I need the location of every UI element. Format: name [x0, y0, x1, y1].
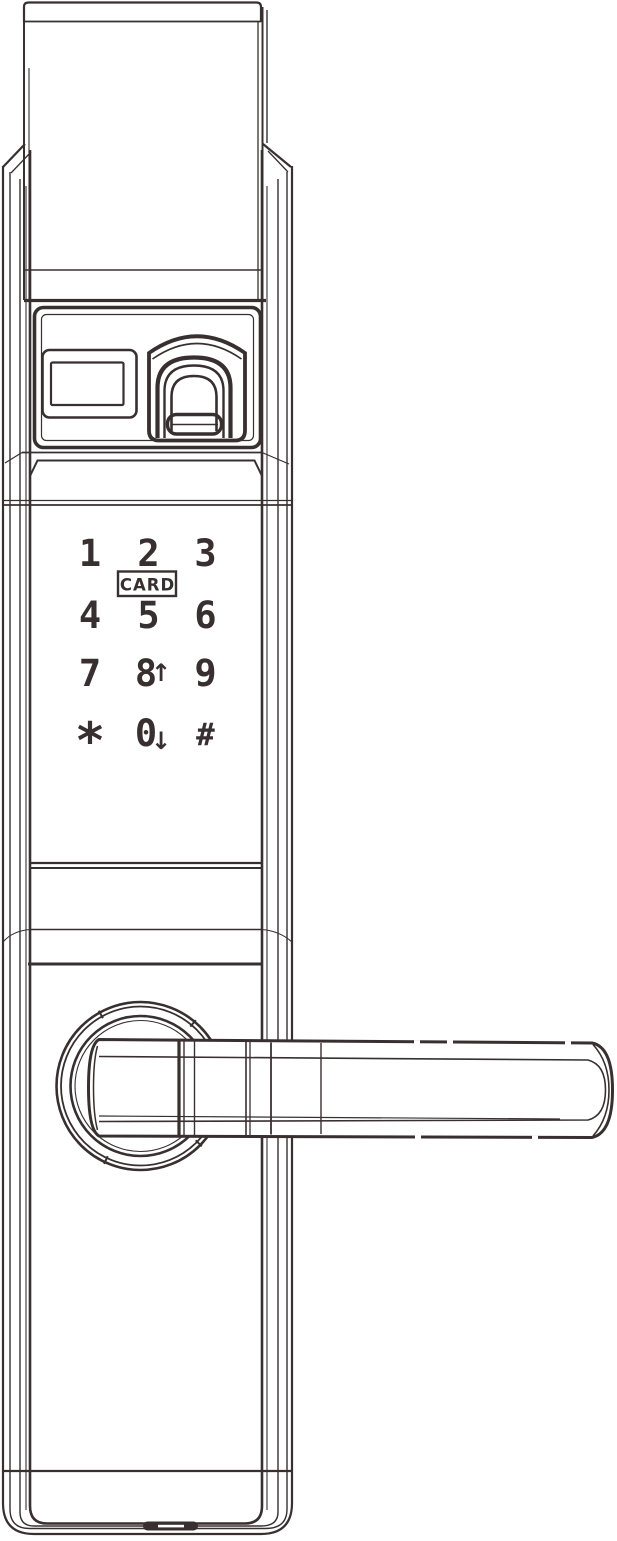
key-star[interactable]: *: [75, 712, 105, 770]
card-label: CARD: [120, 576, 175, 595]
reader-panel-lower-chamfer-right: [262, 453, 289, 465]
card-reader[interactable]: CARD: [118, 572, 176, 597]
key-5-label: 5: [137, 594, 159, 637]
body-seam-mid-hook-left: [3, 930, 31, 943]
key-9[interactable]: 9: [194, 652, 216, 695]
keypad-panel-top-edge: [30, 461, 262, 477]
key-3[interactable]: 3: [194, 532, 216, 575]
key-8-up-arrow-icon: ↑: [151, 659, 171, 687]
fingerprint-arch-inner: [172, 376, 217, 431]
key-hash[interactable]: #: [196, 717, 215, 753]
bottom-port: [143, 1522, 198, 1531]
handle-lever[interactable]: [89, 1040, 613, 1138]
handle: [57, 1002, 613, 1170]
key-1-label: 1: [79, 532, 101, 575]
key-star-label: *: [75, 712, 105, 770]
key-8[interactable]: 8 ↑: [135, 652, 171, 695]
key-0[interactable]: 0 ↓: [135, 712, 171, 755]
lever-outline: [89, 1040, 613, 1138]
top-cover: [24, 3, 267, 301]
key-6[interactable]: 6: [194, 594, 216, 637]
key-3-label: 3: [194, 532, 216, 575]
key-6-label: 6: [194, 594, 216, 637]
body-chamfer-top-right: [263, 144, 291, 167]
key-7[interactable]: 7: [79, 652, 101, 695]
key-4[interactable]: 4: [79, 594, 101, 637]
key-0-down-arrow-icon: ↓: [151, 727, 171, 755]
key-7-label: 7: [79, 652, 101, 695]
keypad: 1 2 3 CARD 4 5 6 7 8 ↑ 9 * 0 ↓ #: [30, 461, 262, 771]
key-1[interactable]: 1: [79, 532, 101, 575]
door-lock-illustration: 1 2 3 CARD 4 5 6 7 8 ↑ 9 * 0 ↓ #: [0, 0, 617, 1541]
bottom-port-slot-highlight: [158, 1525, 184, 1528]
door-lock-drawing: 1 2 3 CARD 4 5 6 7 8 ↑ 9 * 0 ↓ #: [0, 0, 617, 1541]
body-chamfer-top-left: [3, 144, 25, 167]
top-cap: [24, 3, 261, 23]
key-9-label: 9: [194, 652, 216, 695]
key-hash-label: #: [196, 717, 215, 753]
display-window: [43, 350, 137, 418]
key-2[interactable]: 2: [137, 532, 159, 575]
body-face-plate: [30, 150, 262, 1524]
key-4-label: 4: [79, 594, 101, 637]
key-5[interactable]: 5: [137, 594, 159, 637]
key-2-label: 2: [137, 532, 159, 575]
fingerprint-scanner[interactable]: [149, 336, 245, 440]
display-screen: [51, 363, 124, 406]
reader-panel: [5, 308, 289, 465]
